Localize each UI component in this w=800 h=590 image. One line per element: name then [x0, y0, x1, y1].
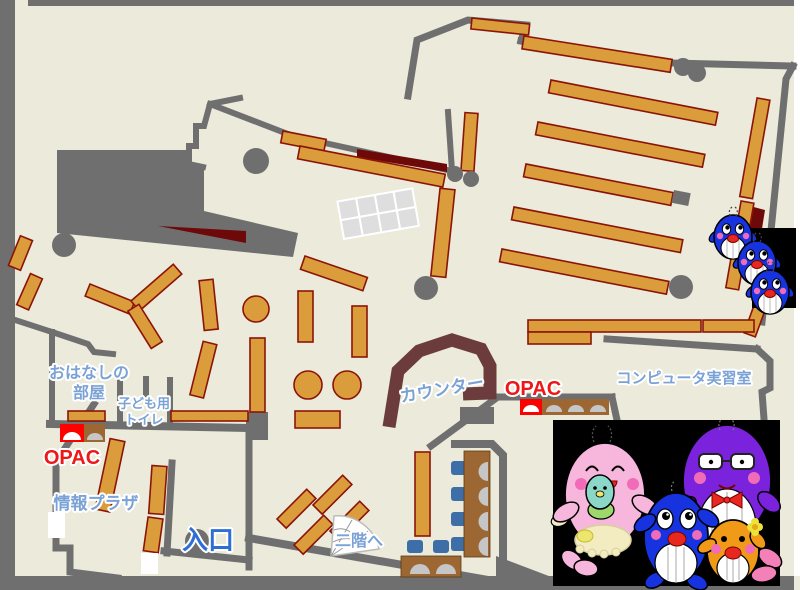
label-kids-toilet: トイレ	[124, 412, 163, 427]
bookshelf	[528, 320, 701, 332]
pillar	[243, 148, 269, 174]
pillar	[688, 64, 706, 82]
frame-top	[28, 0, 794, 6]
table	[295, 411, 340, 428]
label-storytime-room: おはなしの	[49, 364, 129, 382]
bookshelf	[352, 306, 367, 357]
bookshelf	[415, 452, 430, 536]
pillar	[463, 171, 479, 187]
bookshelf	[528, 332, 591, 344]
counter-desk	[460, 407, 494, 424]
label-to-second-floor: 二階へ	[335, 532, 383, 550]
label-storytime-room: 部屋	[73, 383, 105, 402]
label-info-plaza: 情報プラザ	[54, 493, 139, 513]
bookshelf	[250, 338, 265, 412]
round-table	[243, 296, 269, 322]
round-table	[294, 371, 322, 399]
label-kids-toilet: 子ども用	[118, 396, 170, 411]
label-opac-center: OPAC	[505, 378, 561, 400]
bookshelf	[298, 291, 313, 342]
round-table	[333, 371, 361, 399]
wall	[448, 112, 452, 171]
label-computer-room: コンピュータ実習室	[616, 369, 751, 387]
mascot-family-photo	[549, 419, 785, 590]
library-floor-map: おはなしの 部屋 子ども用 トイレ OPAC 情報プラザ 入口 二階へ カウンタ…	[0, 0, 800, 590]
wall-corridor-left	[167, 463, 172, 553]
chair	[407, 540, 423, 553]
white-desk	[141, 553, 158, 574]
pillar	[414, 276, 438, 300]
chair	[433, 540, 449, 553]
teal-whale-baby-icon	[586, 475, 614, 519]
bookshelf	[171, 411, 248, 421]
floor-plan-svg: おはなしの 部屋 子ども用 トイレ OPAC 情報プラザ 入口 二階へ カウンタ…	[0, 0, 800, 590]
pillar	[52, 233, 76, 257]
bookshelf	[149, 466, 167, 515]
opac-terminal-center	[520, 399, 609, 415]
bookshelf	[68, 411, 105, 421]
pillar	[669, 275, 693, 299]
label-opac-left: OPAC	[44, 447, 100, 469]
white-desk	[48, 512, 65, 538]
label-entrance: 入口	[182, 525, 234, 555]
pillar	[447, 166, 463, 182]
opac-terminal-left	[60, 424, 105, 442]
frame-left	[0, 0, 15, 590]
bookshelf	[703, 320, 754, 332]
